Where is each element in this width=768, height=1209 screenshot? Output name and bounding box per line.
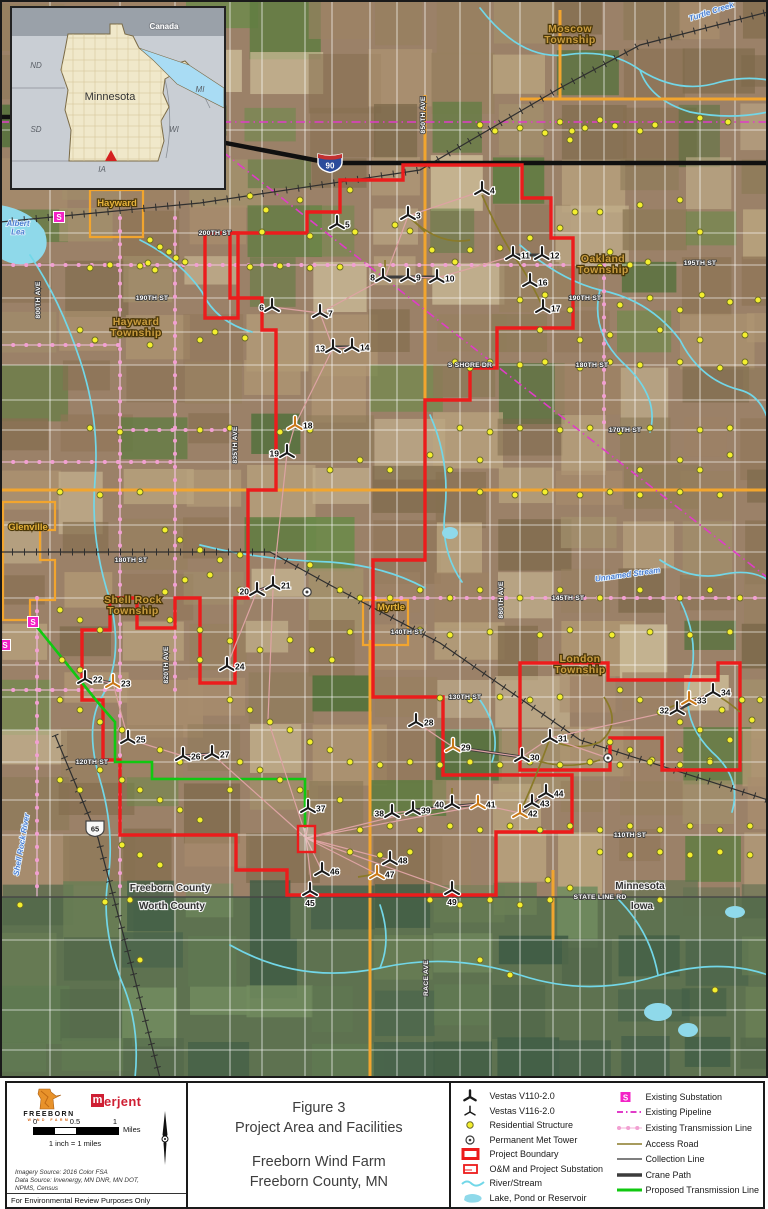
- turbine-label: 12: [550, 251, 560, 261]
- field-patch: [2, 1043, 47, 1072]
- field-patch: [64, 937, 120, 980]
- turbine-label: 13: [316, 344, 326, 354]
- turbine-label: 19: [270, 449, 280, 459]
- residential-structure-dot: [347, 187, 353, 193]
- road-label-vertical: 850TH AVE: [420, 96, 427, 134]
- field-patch: [62, 1038, 132, 1071]
- lake: [725, 906, 745, 918]
- turbine-label: 34: [721, 688, 731, 698]
- residential-structure-dot: [637, 128, 643, 134]
- project-location: Freeborn County, MN: [250, 1173, 388, 1191]
- legend-label: Existing Substation: [645, 1092, 722, 1102]
- residential-structure-dot: [119, 777, 125, 783]
- legend-icon-cell: [459, 1176, 489, 1190]
- residential-structure-dot: [157, 747, 163, 753]
- svg-text:S: S: [30, 618, 36, 627]
- residential-structure-dot: [392, 222, 398, 228]
- residential-structure-dot: [157, 862, 163, 868]
- field-patch: [188, 1042, 249, 1078]
- residential-structure-dot: [357, 827, 363, 833]
- residential-structure-dot: [627, 852, 633, 858]
- residential-structure-dot: [749, 717, 755, 723]
- legend-label: Existing Pipeline: [645, 1107, 711, 1117]
- residential-structure-dot: [587, 759, 593, 765]
- residential-structure-dot: [197, 547, 203, 553]
- field-patch: [623, 727, 674, 784]
- turbine-label: 31: [558, 734, 568, 744]
- merjent-logo: merjent: [91, 1094, 141, 1109]
- residential-structure-dot: [517, 297, 523, 303]
- field-patch: [557, 984, 604, 1032]
- residential-structure-dot: [119, 842, 125, 848]
- residential-structure-dot: [137, 852, 143, 858]
- residential-structure-dot: [487, 897, 493, 903]
- turbine-label: 40: [435, 800, 445, 810]
- residential-structure-dot: [537, 327, 543, 333]
- residential-structure-dot: [507, 972, 513, 978]
- residential-structure-dot: [307, 265, 313, 271]
- residential-structure-dot: [447, 467, 453, 473]
- turbine-label: 23: [121, 679, 131, 689]
- legend-item-collection: Collection Line: [615, 1151, 759, 1167]
- turbine-label: 32: [660, 706, 670, 716]
- turbine-label: 44: [554, 789, 564, 799]
- turbine-label: 37: [316, 804, 326, 814]
- legend-icon-crane: [615, 1168, 645, 1182]
- residential-structure-dot: [542, 130, 548, 136]
- residential-structure-dot: [447, 823, 453, 829]
- residential-structure-dot: [557, 587, 563, 593]
- turbine-label: 18: [303, 421, 313, 431]
- residential-structure-dot: [87, 265, 93, 271]
- field-patch: [556, 471, 622, 505]
- residential-structure-dot: [87, 425, 93, 431]
- turbine-label: 39: [421, 806, 431, 816]
- state-label: SD: [30, 125, 41, 134]
- residential-structure-dot: [527, 235, 533, 241]
- legend-item-turbine116: Vestas V116-2.0: [459, 1104, 611, 1119]
- turbine-label: 6: [259, 303, 264, 313]
- field-patch: [685, 836, 741, 882]
- field-patch: [555, 363, 625, 414]
- residential-structure-dot: [517, 425, 523, 431]
- field-patch: [495, 829, 546, 882]
- turbine-label: 43: [540, 799, 550, 809]
- legend-icon-cell: [615, 1137, 645, 1151]
- scale-one: 1: [113, 1117, 117, 1126]
- residential-structure-dot: [497, 694, 503, 700]
- legend-label: Collection Line: [645, 1154, 704, 1164]
- scale-half: 0.5: [70, 1117, 80, 1126]
- legend-icon-lake: [459, 1191, 489, 1205]
- residential-structure-dot: [377, 762, 383, 768]
- residential-structure-dot: [697, 427, 703, 433]
- road-label: S SHORE DR: [448, 362, 492, 369]
- residential-structure-dot: [477, 122, 483, 128]
- legend-item-boundary: Project Boundary: [459, 1147, 611, 1162]
- residential-structure-dot: [717, 849, 723, 855]
- residential-structure-dot: [497, 245, 503, 251]
- residential-structure-dot: [717, 492, 723, 498]
- town-label: Glenville: [8, 522, 48, 533]
- residential-structure-dot: [166, 249, 172, 255]
- road-label: 195TH ST: [684, 260, 717, 267]
- turbine-label: 4: [490, 186, 495, 196]
- residential-structure-dot: [657, 327, 663, 333]
- county-state-label: Iowa: [631, 901, 654, 912]
- residential-structure-dot: [677, 457, 683, 463]
- residential-structure-dot: [719, 707, 725, 713]
- legend-item-om: O&M and Project Substation: [459, 1162, 611, 1177]
- residential-structure-dot: [152, 267, 158, 273]
- svg-text:65: 65: [91, 825, 99, 834]
- field-patch: [311, 886, 375, 930]
- residential-structure-dot: [287, 637, 293, 643]
- residential-structure-dot: [597, 595, 603, 601]
- field-patch: [743, 209, 768, 259]
- field-patch: [433, 1042, 491, 1078]
- legend-icon-cell: [459, 1118, 489, 1132]
- field-patch: [497, 1037, 559, 1078]
- field-patch: [127, 777, 178, 806]
- residential-structure-dot: [167, 617, 173, 623]
- residential-structure-dot: [677, 595, 683, 601]
- residential-structure-dot: [407, 759, 413, 765]
- road-label: 170TH ST: [609, 427, 642, 434]
- residential-structure-dot: [507, 823, 513, 829]
- scale-bar: 0 0.5 1 Miles 1 inch = 1 miles: [33, 1117, 143, 1148]
- residential-structure-dot: [577, 492, 583, 498]
- residential-structure-dot: [742, 332, 748, 338]
- residential-structure-dot: [57, 607, 63, 613]
- turbine-label: 26: [191, 752, 201, 762]
- legend-item-residence: Residential Structure: [459, 1118, 611, 1133]
- residential-structure-dot: [127, 897, 133, 903]
- residential-structure-dot: [267, 719, 273, 725]
- residential-structure-dot: [97, 492, 103, 498]
- residential-structure-dot: [477, 827, 483, 833]
- residential-structure-dot: [677, 747, 683, 753]
- legend-label: River/Stream: [489, 1178, 542, 1188]
- field-patch: [434, 984, 489, 1025]
- field-patch: [562, 105, 627, 165]
- residential-structure-dot: [182, 577, 188, 583]
- residential-structure-dot: [572, 209, 578, 215]
- state-label: WI: [169, 125, 180, 134]
- legend-icon-cell: [459, 1104, 489, 1118]
- field-patch: [434, 622, 504, 659]
- road-label-vertical: 800TH AVE: [35, 281, 42, 319]
- residential-structure-dot: [597, 117, 603, 123]
- legend-item-lake: Lake, Pond or Reservoir: [459, 1191, 611, 1206]
- residential-structure-dot: [57, 697, 63, 703]
- residential-structure-dot: [677, 359, 683, 365]
- legend-label: Project Boundary: [489, 1149, 558, 1159]
- residential-structure-dot: [747, 823, 753, 829]
- residential-structure-dot: [347, 629, 353, 635]
- residential-structure-dot: [277, 263, 283, 269]
- residential-structure-dot: [97, 767, 103, 773]
- residential-structure-dot: [637, 362, 643, 368]
- residential-structure-dot: [567, 885, 573, 891]
- field-patch: [743, 0, 768, 39]
- residential-structure-dot: [137, 787, 143, 793]
- residential-structure-dot: [607, 739, 613, 745]
- residential-structure-dot: [387, 595, 393, 601]
- residential-structure-dot: [457, 902, 463, 908]
- residential-structure-dot: [517, 362, 523, 368]
- turbine-label: 21: [281, 581, 291, 591]
- turbine-label: 11: [521, 251, 530, 261]
- residential-structure-dot: [637, 202, 643, 208]
- residential-structure-dot: [537, 827, 543, 833]
- field-patch: [494, 883, 537, 915]
- residential-structure-dot: [657, 849, 663, 855]
- field-patch: [492, 985, 545, 1039]
- field-patch: [561, 415, 606, 475]
- residential-structure-dot: [727, 452, 733, 458]
- residential-structure-dot: [612, 123, 618, 129]
- residential-structure-dot: [477, 489, 483, 495]
- field-patch: [310, 108, 376, 157]
- legend-item-river: River/Stream: [459, 1176, 611, 1191]
- residential-structure-dot: [117, 429, 123, 435]
- residential-structure-dot: [17, 902, 23, 908]
- residential-structure-dot: [547, 897, 553, 903]
- residential-structure-dot: [747, 852, 753, 858]
- legend-icon-cell: [459, 1133, 489, 1147]
- residential-structure-dot: [677, 719, 683, 725]
- legend-icon-cell: [615, 1121, 645, 1135]
- residential-structure-dot: [617, 302, 623, 308]
- legend-icon-turbine110: [459, 1089, 489, 1103]
- residential-structure-dot: [739, 697, 745, 703]
- residential-structure-dot: [207, 572, 213, 578]
- residential-structure-dot: [157, 244, 163, 250]
- residential-structure-dot: [647, 425, 653, 431]
- field-patch: [561, 517, 617, 548]
- residential-structure-dot: [212, 329, 218, 335]
- residential-structure-dot: [597, 849, 603, 855]
- title-block: Figure 3 Project Area and Facilities Fre…: [188, 1083, 451, 1207]
- met-tower-symbol: [604, 754, 612, 762]
- field-patch: [188, 936, 236, 987]
- residential-structure-dot: [697, 467, 703, 473]
- road-label: 120TH ST: [76, 759, 109, 766]
- legend-column-left: Vestas V110-2.0Vestas V116-2.0Residentia…: [459, 1089, 611, 1205]
- residential-structure-dot: [197, 337, 203, 343]
- residential-structure-dot: [757, 697, 763, 703]
- field-patch: [436, 472, 486, 528]
- residential-structure-dot: [227, 638, 233, 644]
- residential-structure-dot: [427, 452, 433, 458]
- residential-structure-dot: [297, 787, 303, 793]
- turbine-label: 49: [447, 897, 457, 907]
- residential-structure-dot: [297, 197, 303, 203]
- field-patch: [498, 626, 538, 680]
- residential-structure-dot: [725, 119, 731, 125]
- town-label: Hayward: [97, 198, 137, 209]
- residential-structure-dot: [347, 759, 353, 765]
- residential-structure-dot: [247, 264, 253, 270]
- residential-structure-dot: [517, 595, 523, 601]
- residential-structure-dot: [102, 899, 108, 905]
- residential-structure-dot: [137, 957, 143, 963]
- residential-structure-dot: [377, 852, 383, 858]
- minnesota-label: Minnesota: [85, 91, 137, 103]
- residential-structure-dot: [427, 897, 433, 903]
- field-patch: [121, 417, 187, 459]
- field-patch: [740, 104, 768, 151]
- field-patch: [251, 1039, 309, 1078]
- field-patch: [0, 986, 69, 1045]
- residential-structure-dot: [637, 492, 643, 498]
- field-patch: [742, 884, 768, 918]
- residential-structure-dot: [557, 694, 563, 700]
- field-patch: [682, 988, 727, 1016]
- residential-structure-dot: [309, 647, 315, 653]
- residential-structure-dot: [307, 739, 313, 745]
- residential-structure-dot: [197, 817, 203, 823]
- legend-label: Residential Structure: [489, 1120, 573, 1130]
- residential-structure-dot: [247, 193, 253, 199]
- legend-icon-proposed: [615, 1183, 645, 1197]
- residential-structure-dot: [569, 128, 575, 134]
- residential-structure-dot: [257, 647, 263, 653]
- residential-structure-dot: [677, 197, 683, 203]
- field-patch: [430, 209, 474, 253]
- residential-structure-dot: [609, 632, 615, 638]
- residential-structure-dot: [467, 759, 473, 765]
- township-label: MoscowTownship: [544, 23, 595, 46]
- residential-structure-dot: [417, 827, 423, 833]
- field-patch: [493, 55, 545, 94]
- town-label: Myrtle: [377, 602, 405, 613]
- field-patch: [620, 418, 670, 461]
- residential-structure-dot: [492, 128, 498, 134]
- merjent-m-icon: m: [91, 1094, 104, 1107]
- residential-structure-dot: [247, 707, 253, 713]
- turbine-label: 38: [375, 809, 385, 819]
- legend-icon-boundary: [459, 1147, 489, 1161]
- residential-structure-dot: [457, 425, 463, 431]
- turbine-label: 5: [345, 220, 350, 230]
- field-patch: [246, 621, 288, 653]
- residential-structure-dot: [277, 429, 283, 435]
- project-name: Freeborn Wind Farm: [252, 1153, 386, 1171]
- residential-structure-dot: [437, 695, 443, 701]
- turbine-label: 16: [538, 278, 548, 288]
- legend-icon-om: [459, 1162, 489, 1176]
- residential-structure-dot: [727, 737, 733, 743]
- legend-icon-cell: S: [615, 1090, 645, 1104]
- field-patch: [375, 991, 435, 1037]
- residential-structure-dot: [259, 229, 265, 235]
- turbine-label: 17: [551, 304, 561, 314]
- residential-structure-dot: [582, 125, 588, 131]
- scale-bar-graphic: [33, 1127, 119, 1135]
- residential-structure-dot: [607, 489, 613, 495]
- field-patch: [312, 1044, 385, 1078]
- residential-structure-dot: [77, 667, 83, 673]
- residential-structure-dot: [257, 767, 263, 773]
- field-patch: [680, 575, 735, 610]
- residential-structure-dot: [97, 627, 103, 633]
- residential-structure-dot: [237, 759, 243, 765]
- field-patch: [368, 309, 409, 352]
- turbine-label: 28: [424, 718, 434, 728]
- residential-structure-dot: [542, 359, 548, 365]
- residential-structure-dot: [77, 327, 83, 333]
- residential-structure-dot: [617, 762, 623, 768]
- canada-label: Canada: [150, 22, 179, 31]
- county-state-label: Worth County: [139, 901, 205, 912]
- legend-item-crane: Crane Path: [615, 1167, 759, 1183]
- field-patch: [620, 781, 684, 815]
- residential-structure-dot: [307, 562, 313, 568]
- residential-structure-dot: [387, 823, 393, 829]
- legend-icon-access: [615, 1137, 645, 1151]
- turbine-label: 8: [370, 273, 375, 283]
- turbine-label: 3: [416, 211, 421, 221]
- met-tower-symbol: [303, 588, 311, 596]
- residential-structure-dot: [517, 902, 523, 908]
- legend-item-transmission: Existing Transmission Line: [615, 1120, 759, 1136]
- residential-structure-dot: [477, 457, 483, 463]
- turbine-label: 10: [445, 274, 455, 284]
- turbine-label: 20: [240, 587, 250, 597]
- residential-structure-dot: [637, 587, 643, 593]
- residential-structure-dot: [437, 762, 443, 768]
- field-patch: [623, 0, 680, 40]
- residential-structure-dot: [77, 787, 83, 793]
- field-patch: [748, 777, 768, 829]
- residential-structure-dot: [697, 115, 703, 121]
- merjent-logo-text: erjent: [104, 1094, 141, 1109]
- field-patch: [746, 987, 768, 1047]
- field-patch: [433, 933, 492, 972]
- field-patch: [185, 362, 242, 404]
- residential-structure-dot: [697, 229, 703, 235]
- residential-structure-dot: [337, 264, 343, 270]
- residential-structure-dot: [477, 587, 483, 593]
- field-patch: [685, 1037, 731, 1067]
- legend-icon-residence: [459, 1118, 489, 1132]
- field-patch: [374, 730, 442, 784]
- residential-structure-dot: [352, 229, 358, 235]
- residential-structure-dot: [107, 262, 113, 268]
- legend-item-met: Permanent Met Tower: [459, 1133, 611, 1148]
- residential-structure-dot: [77, 707, 83, 713]
- county-state-label: Minnesota: [615, 881, 665, 892]
- residential-structure-dot: [162, 589, 168, 595]
- legend-item-access: Access Road: [615, 1136, 759, 1152]
- data-source: Data Source: Invenergy, MN DNR, MN DOT,: [15, 1177, 139, 1185]
- residential-structure-dot: [277, 777, 283, 783]
- field-patch: [741, 55, 768, 87]
- residential-structure-dot: [699, 292, 705, 298]
- field-patch: [436, 729, 502, 780]
- field-patch: [313, 468, 370, 504]
- field-patch: [683, 367, 750, 403]
- road-label-vertical: 820TH AVE: [163, 646, 170, 684]
- residential-structure-dot: [92, 337, 98, 343]
- inset-locator-map: CanadaNDSDIAWIMIMinnesota: [10, 6, 226, 190]
- legend-icon-met: [459, 1133, 489, 1147]
- residential-structure-dot: [647, 759, 653, 765]
- residential-structure-dot: [57, 489, 63, 495]
- field-patch: [620, 624, 667, 679]
